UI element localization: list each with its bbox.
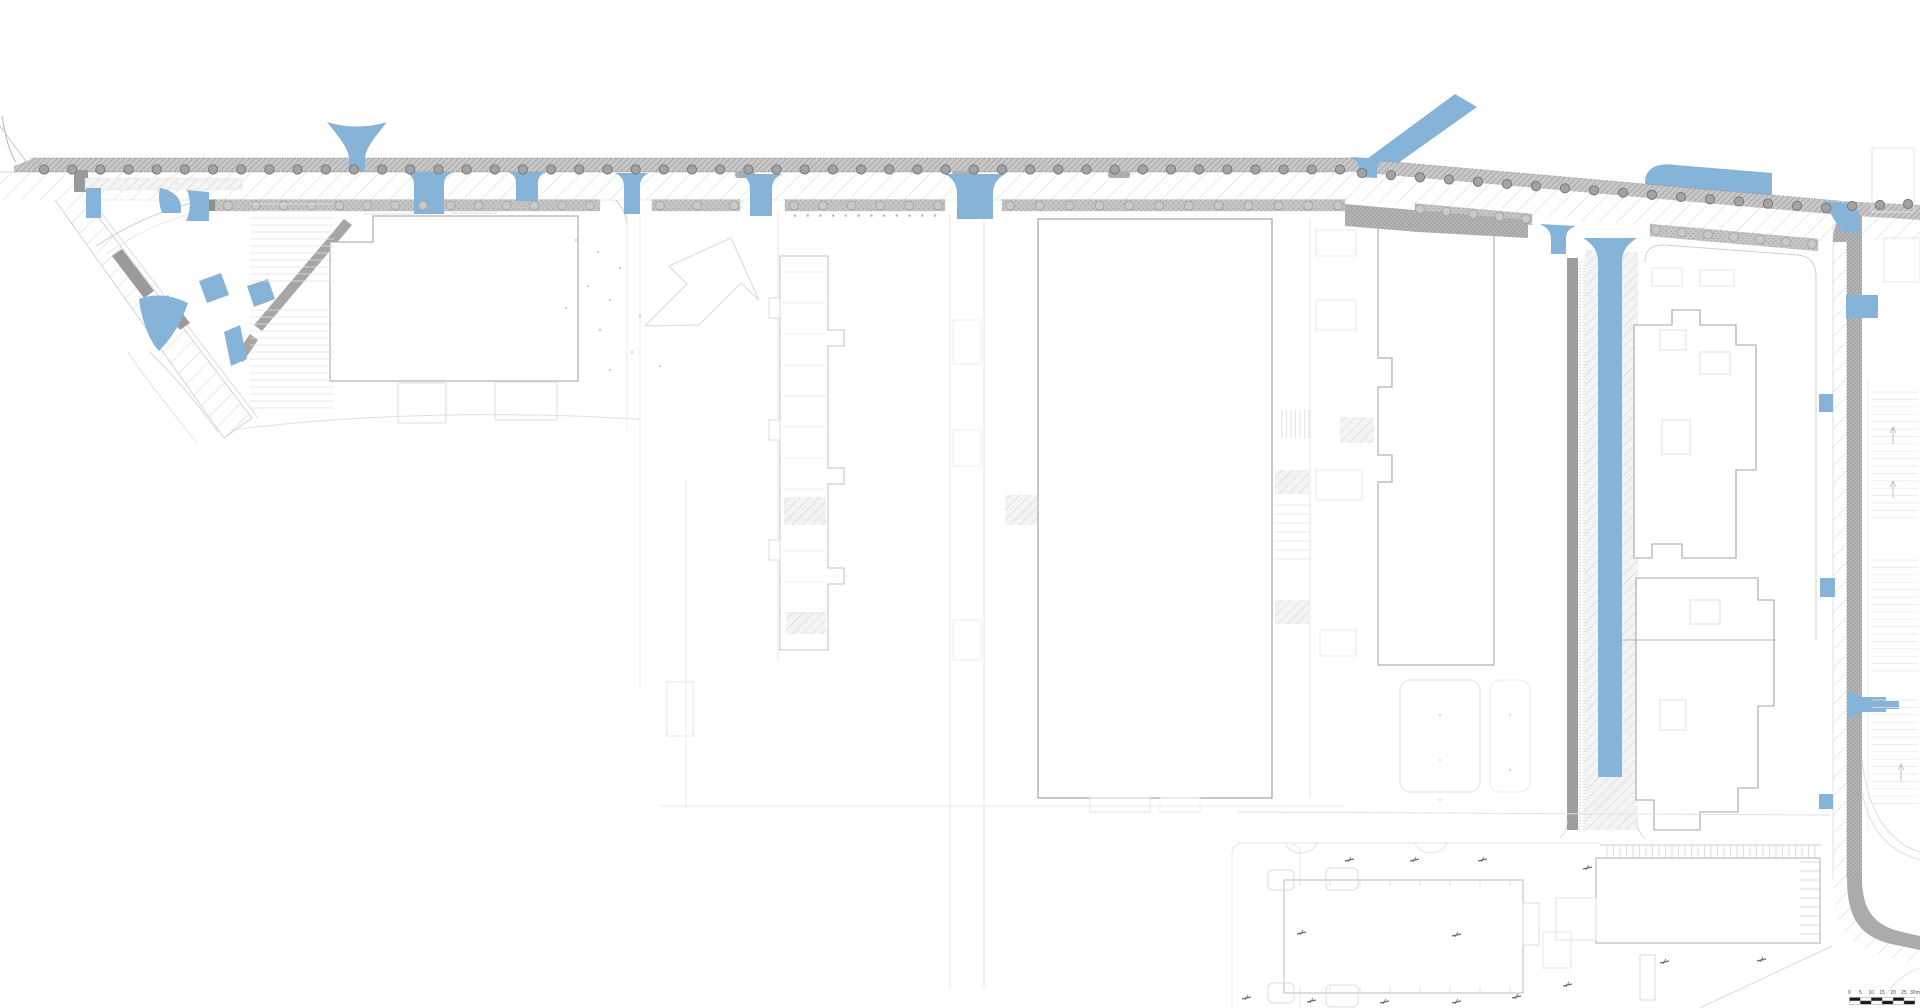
plaza-dots	[575, 239, 578, 242]
courtyard-hatch	[786, 612, 826, 634]
right-road-gray-band	[1847, 225, 1862, 880]
tree-row-south	[1244, 201, 1253, 210]
tree-row-north-sloped	[1734, 197, 1743, 206]
plaza-dots	[609, 369, 612, 372]
tree-row-north	[1054, 165, 1063, 174]
tree-row-north	[687, 165, 696, 174]
plaza-dots	[631, 351, 634, 354]
tree-row-north	[1251, 165, 1260, 174]
planting-band-south	[1002, 200, 1345, 212]
blue-square-east	[1819, 394, 1833, 412]
tree-row-north	[293, 165, 302, 174]
plaza-dots	[599, 329, 602, 332]
site-plan-canvas: 051015202530m	[0, 0, 1920, 1008]
tree-row-south	[530, 201, 539, 210]
tree-row-north-sloped	[1415, 173, 1424, 182]
tree-row-south	[307, 201, 316, 210]
plaza-dots	[619, 267, 622, 270]
courtyard-hatch	[784, 497, 826, 525]
plaza-dots	[565, 307, 568, 310]
tree-row-north	[377, 165, 386, 174]
tree-row-south-sloped	[1678, 228, 1687, 237]
blue-square-east	[1820, 578, 1835, 597]
tree-row-south-sloped	[1756, 235, 1765, 244]
tree-row-north	[1279, 165, 1288, 174]
planting-band-south	[215, 200, 600, 212]
tree-row-north	[772, 165, 781, 174]
tree-row-south-sloped	[1416, 205, 1425, 214]
tree-row-north-sloped	[1386, 171, 1395, 180]
tree-row-south-sloped	[1522, 215, 1531, 224]
blue-crossing-square	[224, 325, 247, 366]
canal-street-curb	[1560, 820, 1567, 838]
shrub-dot-row	[883, 214, 886, 217]
tree-row-north	[68, 165, 77, 174]
tree-row-east-stub	[1903, 199, 1912, 208]
plaza-south-curb	[232, 415, 640, 430]
tree-row-south	[1155, 201, 1164, 210]
shrub-dot-row	[832, 214, 835, 217]
tree-row-north	[406, 165, 415, 174]
scalebar-label: 0	[1848, 990, 1851, 996]
shrub-dot-row	[819, 214, 822, 217]
court-dots	[1439, 714, 1441, 716]
rowhouse-bump	[769, 540, 780, 560]
tree-row-north-sloped	[1357, 168, 1366, 177]
tree-row-north	[462, 165, 471, 174]
tree-row-south	[1334, 201, 1343, 210]
parking-court	[1490, 680, 1530, 792]
loading-dock	[1090, 798, 1150, 812]
tree-row-south-sloped	[1469, 210, 1478, 219]
tree-row-south	[1274, 201, 1283, 210]
bottom-diagonal-path	[1700, 946, 1832, 1008]
tree-row-north	[124, 165, 133, 174]
tree-row-north	[603, 165, 612, 174]
tree-row-north-sloped	[1676, 192, 1685, 201]
rowhouse-bump	[769, 298, 780, 318]
shrub-dot-row	[921, 214, 924, 217]
tree-row-north	[1223, 165, 1232, 174]
tree-row-north-sloped	[1705, 195, 1714, 204]
scalebar-label: 25	[1901, 990, 1907, 996]
court-dots	[1509, 714, 1511, 716]
tree-row-south	[419, 201, 428, 210]
curb-cut	[1415, 843, 1447, 853]
shrub-dot-row	[908, 214, 911, 217]
tree-row-north	[1082, 165, 1091, 174]
tree-row-south	[934, 201, 943, 210]
scalebar-segment	[1860, 998, 1871, 1001]
tree-row-south	[1035, 201, 1044, 210]
right-road-hatch	[1833, 225, 1847, 880]
hall-building	[1038, 219, 1272, 798]
parking-lot-building	[1884, 238, 1920, 282]
court-dots	[1439, 799, 1441, 801]
tree-row-north	[1166, 165, 1175, 174]
tree-row-south	[818, 201, 827, 210]
notched-building	[1378, 218, 1494, 665]
site-plan-page: 051015202530m	[0, 0, 1920, 1008]
curb-arc	[1862, 792, 1920, 860]
scalebar-segment	[1850, 1001, 1861, 1004]
scalebar-segment	[1904, 998, 1915, 1001]
canal-street-dark-band	[1567, 258, 1578, 830]
shrub-dot-row	[794, 214, 797, 217]
street-box	[953, 320, 981, 364]
tree-row-north-sloped	[1792, 201, 1801, 210]
parking-arrow	[1890, 427, 1896, 444]
scalebar-label: 10	[1869, 990, 1875, 996]
tree-row-north	[659, 165, 668, 174]
tree-row-north	[321, 165, 330, 174]
tree-row-south	[251, 201, 260, 210]
shrub-dot-row	[857, 214, 860, 217]
tree-row-south-sloped	[1442, 207, 1451, 216]
scalebar-label: 15	[1879, 990, 1885, 996]
blue-crossing-square	[247, 279, 275, 307]
tree-row-north	[941, 165, 950, 174]
parking-court	[1400, 680, 1480, 792]
scalebar-segment	[1871, 998, 1882, 1001]
east-building-lower	[1636, 578, 1774, 830]
tree-row-south-sloped	[1730, 233, 1739, 242]
side-room	[1316, 470, 1362, 500]
scalebar-segment	[1860, 1001, 1871, 1004]
east-room	[1652, 268, 1682, 286]
blue-square-east	[1819, 794, 1833, 809]
tree-row-south	[502, 201, 511, 210]
scalebar-label: 30m	[1910, 990, 1920, 996]
scalebar-label: 20	[1890, 990, 1896, 996]
tree-row-south	[558, 201, 567, 210]
tree-row-north	[434, 165, 443, 174]
shrub-dot-row	[845, 214, 848, 217]
bottom-building-wing	[1523, 903, 1539, 945]
side-room	[1320, 630, 1356, 656]
tree-row-north	[208, 165, 217, 174]
tree-row-north	[1195, 165, 1204, 174]
stair-hatch	[1275, 470, 1309, 494]
east-building-upper	[1634, 310, 1756, 558]
court-dots	[1439, 759, 1441, 761]
bottom-street-curb	[1232, 845, 1240, 1008]
tree-row-south	[446, 201, 455, 210]
scalebar-segment	[1882, 1001, 1893, 1004]
blue-connector	[1540, 224, 1576, 254]
blue-crossing-east	[1846, 295, 1878, 318]
scalebar-segment	[1893, 1001, 1904, 1004]
tree-row-north	[744, 165, 753, 174]
tree-row-north	[265, 165, 274, 174]
tree-row-north-sloped	[1647, 190, 1656, 199]
blue-pier-tail	[1886, 701, 1899, 709]
shrub-dot-row	[870, 214, 873, 217]
tree-row-north	[800, 165, 809, 174]
canal-street-curb	[1637, 820, 1645, 838]
side-room	[1316, 300, 1356, 330]
scalebar-label: 5	[1859, 990, 1862, 996]
stair-hatch	[1275, 600, 1309, 624]
bottom-road-edge	[1238, 812, 1830, 815]
rowhouse-bump	[769, 420, 780, 440]
tree-row-south	[790, 201, 799, 210]
plaza-dots	[597, 251, 600, 254]
tree-row-north	[152, 165, 161, 174]
tree-row-north	[180, 165, 189, 174]
tree-row-south-sloped	[1495, 212, 1504, 221]
tree-row-north-sloped	[1589, 186, 1598, 195]
tree-row-south	[1185, 201, 1194, 210]
rowhouse-building	[780, 256, 844, 650]
scalebar-segment	[1893, 998, 1904, 1001]
tree-row-north-sloped	[1618, 188, 1627, 197]
tree-row-north-sloped	[1502, 179, 1511, 188]
tree-row-north	[1307, 165, 1316, 174]
street-box	[953, 430, 981, 466]
tree-row-south	[1095, 201, 1104, 210]
tree-row-north	[1110, 165, 1119, 174]
bottom-building-east	[1596, 858, 1820, 943]
east-room	[1700, 270, 1734, 286]
planting-band-south	[785, 200, 945, 212]
shrub-dot-row	[934, 214, 937, 217]
tree-row-south	[1065, 201, 1074, 210]
tree-row-south	[847, 201, 856, 210]
bottom-slab	[1640, 955, 1655, 1000]
street-hatch	[1005, 495, 1037, 525]
tree-row-north	[575, 165, 584, 174]
tree-row-north	[518, 165, 527, 174]
tree-row-north	[349, 165, 358, 174]
tree-row-south	[905, 201, 914, 210]
plaza-arrow-marking	[645, 238, 759, 326]
tree-row-south	[730, 201, 739, 210]
tree-row-north	[885, 165, 894, 174]
tree-row-south-sloped	[1808, 240, 1817, 249]
left-shed	[667, 682, 693, 736]
bottom-building	[1284, 880, 1523, 993]
tree-row-south	[1006, 201, 1015, 210]
plan-content	[0, 94, 1920, 1008]
tree-row-south	[391, 201, 400, 210]
plaza-dots	[609, 299, 612, 302]
scalebar-segment	[1904, 1001, 1915, 1004]
plaza-dots	[577, 355, 580, 358]
tree-row-north	[716, 165, 725, 174]
side-room	[1316, 230, 1356, 256]
tree-row-south	[1304, 201, 1313, 210]
tree-row-north	[490, 165, 499, 174]
tree-row-north	[856, 165, 865, 174]
tree-row-north-sloped	[1560, 184, 1569, 193]
tree-row-south	[876, 201, 885, 210]
tree-row-south	[224, 201, 233, 210]
tree-row-north-sloped	[1821, 203, 1830, 212]
tree-row-north	[96, 165, 105, 174]
tree-row-south	[586, 201, 595, 210]
court-dots	[1509, 769, 1511, 771]
canal-walk-west	[1585, 250, 1598, 830]
tree-row-north	[237, 165, 246, 174]
tree-row-north	[828, 165, 837, 174]
tree-row-north	[1335, 165, 1344, 174]
tree-row-south-sloped	[1652, 226, 1661, 235]
plaza-dots	[587, 285, 590, 288]
blue-crossing-square	[199, 273, 229, 303]
curb-cut	[1285, 843, 1317, 853]
tree-row-south	[474, 201, 483, 210]
tree-row-north-sloped	[1473, 177, 1482, 186]
blue-square-west	[86, 188, 101, 218]
building-annex	[398, 383, 446, 423]
tree-row-north	[547, 165, 556, 174]
bottom-building-annex	[1556, 898, 1596, 940]
tree-row-south	[656, 201, 665, 210]
tree-row-south	[279, 201, 288, 210]
shrub-dot-row	[896, 214, 899, 217]
tree-row-north	[39, 165, 48, 174]
tree-row-south	[693, 201, 702, 210]
scalebar-segment	[1850, 998, 1861, 1001]
tree-row-north-sloped	[1531, 182, 1540, 191]
tree-row-north	[1025, 165, 1034, 174]
scalebar-segment	[1882, 998, 1893, 1001]
loading-dock	[1160, 798, 1200, 812]
tree-row-north	[969, 165, 978, 174]
canal-walk-south	[1585, 777, 1638, 830]
tree-row-south	[1214, 201, 1223, 210]
plaza-dots	[659, 365, 662, 368]
tree-row-north	[913, 165, 922, 174]
blue-corner-patch	[186, 190, 209, 221]
shrub-dot-row	[806, 214, 809, 217]
tree-row-north-sloped	[1444, 175, 1453, 184]
tree-row-south	[1125, 201, 1134, 210]
sidewalk-band-west	[85, 178, 242, 190]
tree-row-east-stub	[1847, 201, 1856, 210]
tree-row-east-stub	[1875, 200, 1884, 209]
tree-row-north	[1138, 165, 1147, 174]
side-hatch	[1340, 417, 1374, 443]
tree-row-north-sloped	[1763, 199, 1772, 208]
plaza-dots	[639, 315, 642, 318]
tree-row-south-sloped	[1704, 230, 1713, 239]
tree-row-north	[997, 165, 1006, 174]
tree-row-south	[335, 201, 344, 210]
tree-row-south	[363, 201, 372, 210]
tree-row-south-sloped	[1782, 237, 1791, 246]
tree-row-north	[631, 165, 640, 174]
building-outline	[330, 216, 578, 381]
bottom-building-annex	[1543, 932, 1571, 968]
scalebar-segment	[1871, 1001, 1882, 1004]
street-box	[953, 620, 981, 660]
